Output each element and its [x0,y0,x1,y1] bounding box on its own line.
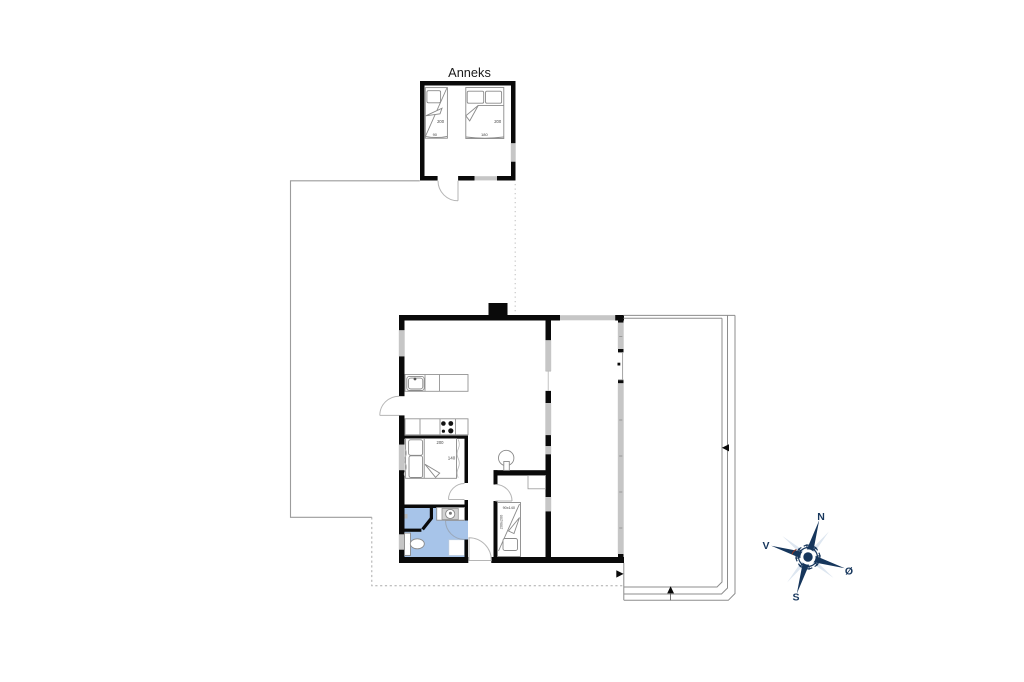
svg-text:Anneks: Anneks [448,65,491,80]
svg-text:Ø: Ø [845,566,853,578]
svg-text:180: 180 [481,132,488,137]
svg-text:140: 140 [448,456,456,461]
svg-text:200: 200 [437,440,445,445]
svg-text:V: V [762,540,769,552]
svg-text:90x140: 90x140 [503,506,515,510]
svg-text:200x200: 200x200 [500,515,504,530]
svg-text:200: 200 [437,119,445,124]
svg-text:N: N [817,511,825,523]
svg-text:S: S [792,592,799,604]
svg-text:200: 200 [494,119,502,124]
svg-text:90: 90 [433,132,438,137]
